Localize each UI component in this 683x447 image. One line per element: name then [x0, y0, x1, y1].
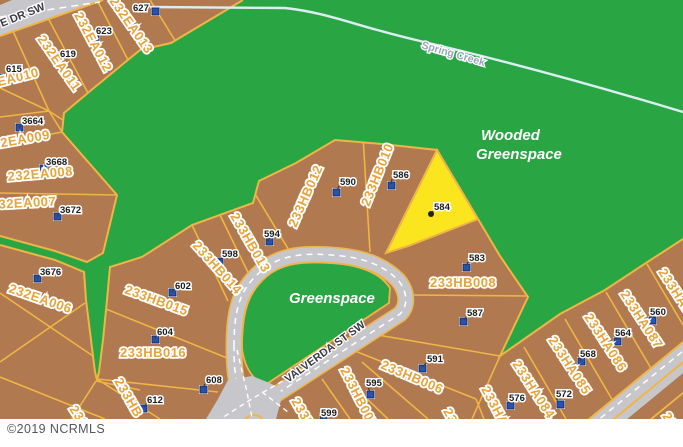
svg-text:608: 608	[206, 375, 222, 386]
svg-text:591: 591	[427, 354, 444, 365]
svg-text:©2019 NCRMLS: ©2019 NCRMLS	[7, 422, 105, 436]
svg-text:560: 560	[650, 307, 666, 318]
svg-text:587: 587	[467, 308, 483, 319]
svg-text:576: 576	[509, 393, 525, 404]
svg-text:590: 590	[340, 177, 356, 188]
svg-text:Wooded: Wooded	[481, 127, 541, 144]
svg-text:Greenspace: Greenspace	[476, 146, 562, 163]
svg-text:Greenspace: Greenspace	[289, 290, 375, 307]
svg-text:627: 627	[133, 3, 149, 14]
svg-text:3672: 3672	[60, 205, 81, 216]
svg-text:233HB008: 233HB008	[430, 275, 496, 290]
svg-text:615: 615	[6, 64, 23, 75]
svg-text:598: 598	[222, 249, 238, 260]
svg-text:586: 586	[393, 170, 409, 181]
svg-text:623: 623	[96, 26, 112, 37]
svg-text:583: 583	[469, 253, 485, 264]
svg-text:612: 612	[147, 395, 163, 406]
svg-text:233HB016: 233HB016	[120, 345, 186, 360]
svg-text:599: 599	[321, 408, 337, 419]
svg-text:3668: 3668	[46, 157, 67, 168]
svg-text:595: 595	[366, 378, 383, 389]
svg-text:564: 564	[615, 328, 632, 339]
svg-text:619: 619	[60, 49, 76, 60]
svg-text:568: 568	[580, 349, 596, 360]
svg-text:594: 594	[264, 229, 281, 240]
svg-text:3664: 3664	[22, 116, 44, 127]
svg-text:3676: 3676	[40, 267, 61, 278]
svg-text:602: 602	[175, 281, 191, 292]
svg-text:584: 584	[434, 202, 451, 213]
svg-text:604: 604	[157, 327, 174, 338]
svg-text:572: 572	[556, 389, 572, 400]
